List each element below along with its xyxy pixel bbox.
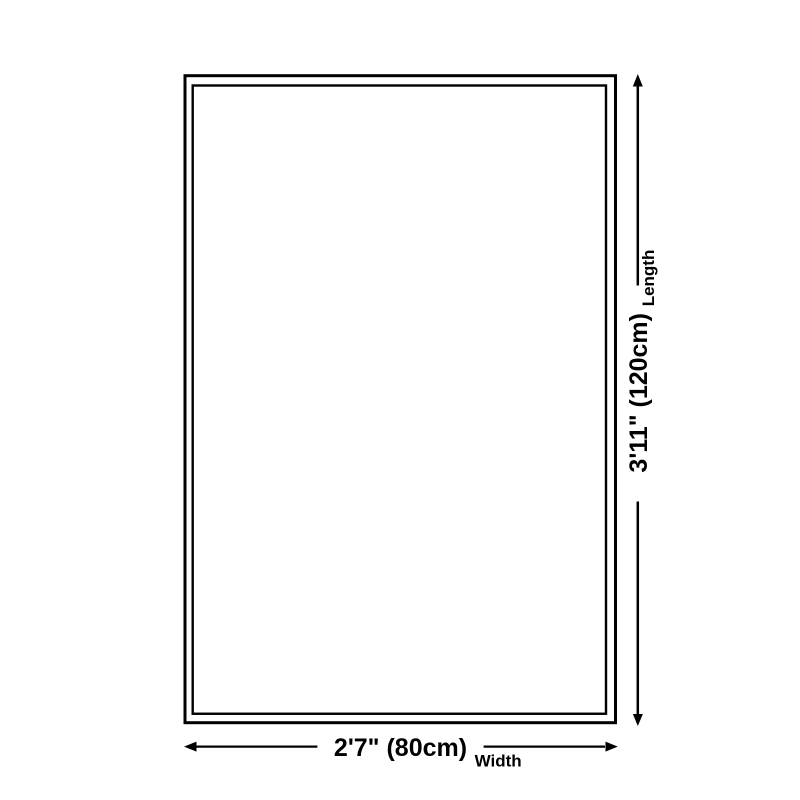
- svg-text:Width: Width: [475, 752, 522, 771]
- svg-text:2'7" (80cm): 2'7" (80cm): [334, 734, 467, 762]
- svg-text:Length: Length: [639, 250, 658, 307]
- svg-text:3'11" (120cm): 3'11" (120cm): [625, 313, 653, 473]
